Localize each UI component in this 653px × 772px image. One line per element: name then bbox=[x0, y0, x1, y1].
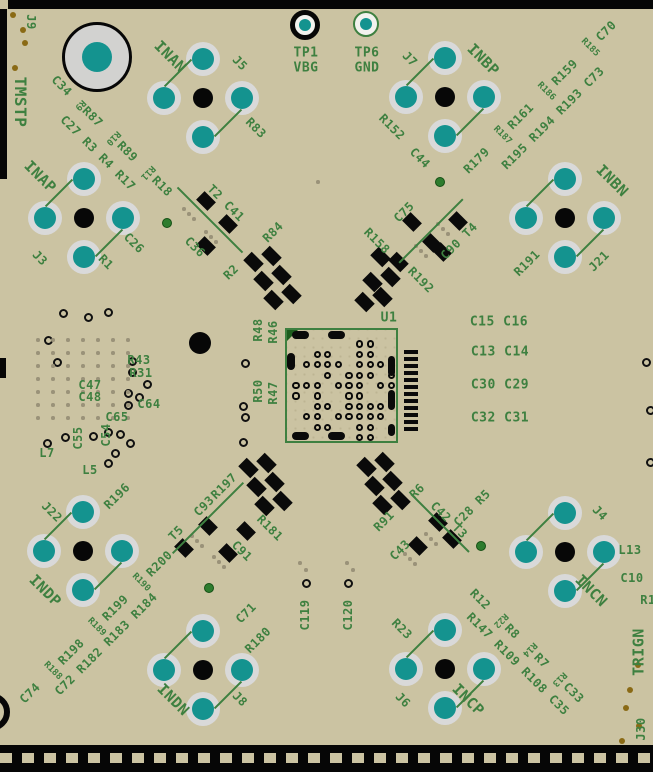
edge-left-tab bbox=[0, 358, 6, 378]
pcb-layout-canvas[interactable]: 1 J9TMSTPTP1VBGTP6GNDINANJ5R83J7INBPR152… bbox=[0, 0, 653, 772]
board-outline-dashes bbox=[0, 753, 653, 763]
mounting-hole-ring bbox=[0, 693, 10, 731]
edge-top-strip bbox=[8, 0, 653, 9]
board-edge-layer bbox=[0, 0, 653, 772]
edge-left-sliver bbox=[0, 9, 7, 179]
